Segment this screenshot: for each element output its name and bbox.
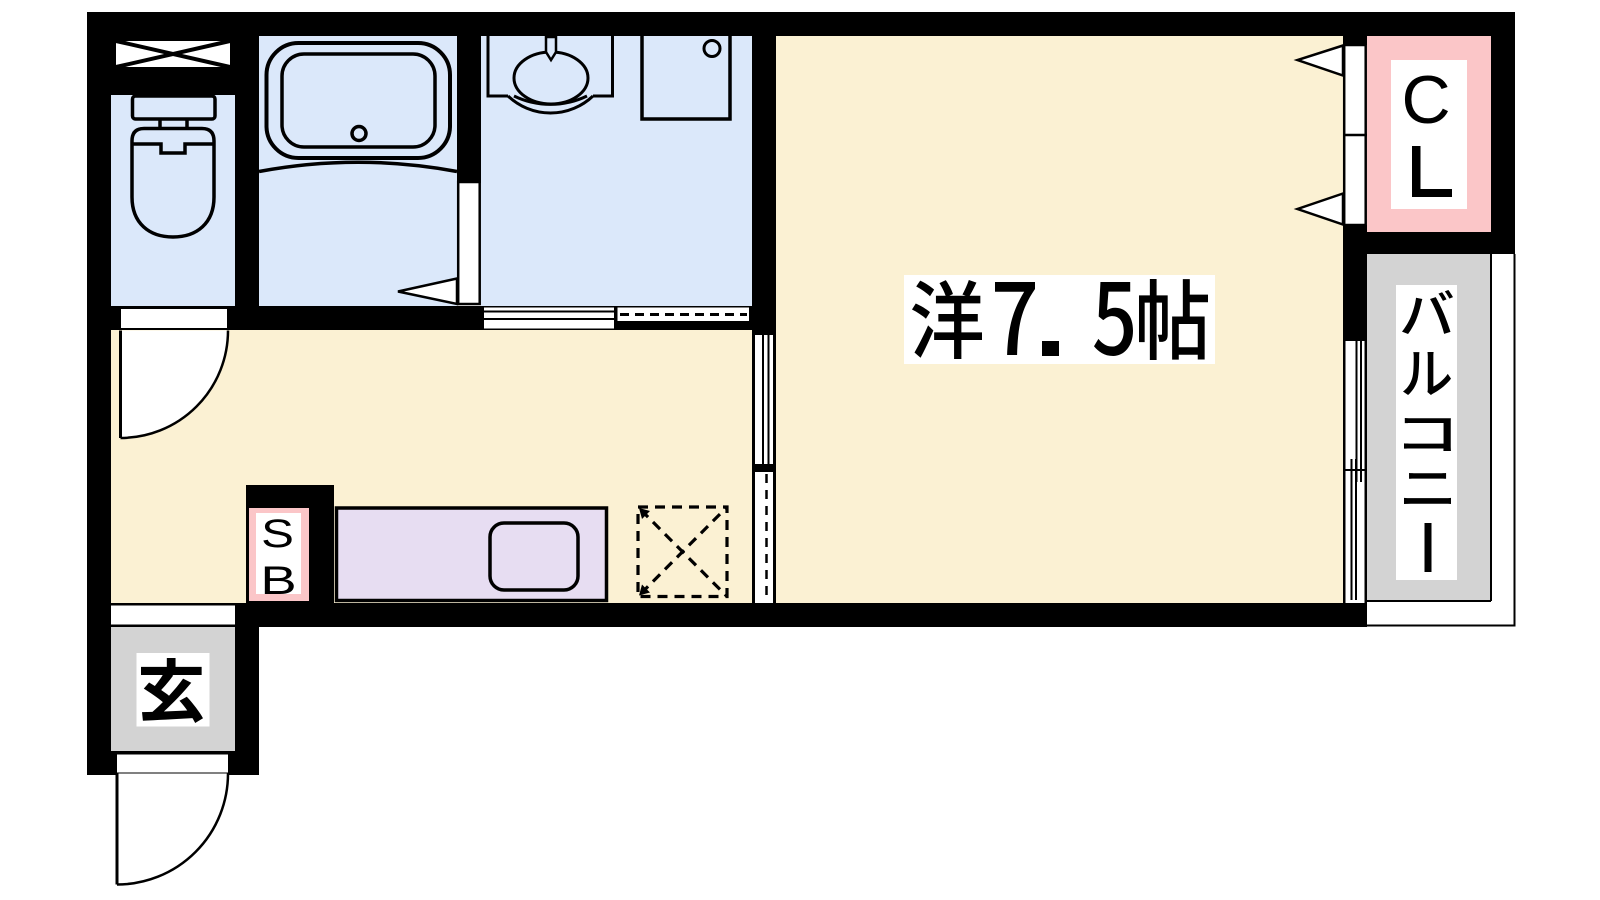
- svg-text:S: S: [261, 510, 294, 555]
- svg-text:B: B: [260, 559, 296, 603]
- svg-text:C: C: [1401, 62, 1450, 138]
